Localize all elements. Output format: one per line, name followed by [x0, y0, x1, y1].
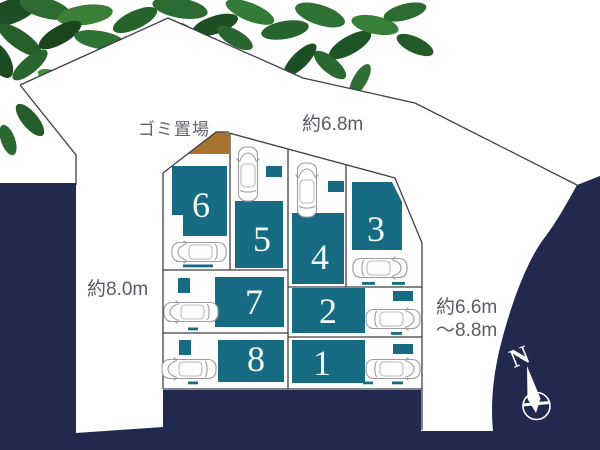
porch-marker-1	[393, 344, 413, 354]
car-icon	[164, 301, 218, 324]
lot-number-3: 3	[367, 209, 385, 249]
stall-dash-6	[183, 265, 213, 268]
stall-dash-1a	[363, 382, 373, 385]
garbage-area-label: ゴミ置場	[138, 119, 210, 139]
stall-dash-3a	[362, 282, 375, 285]
dimension-top-label: 約6.8m	[302, 113, 363, 135]
lot-number-7: 7	[245, 282, 263, 322]
left-navy-band	[0, 183, 76, 450]
car-icon	[366, 358, 420, 381]
lot-number-5: 5	[253, 219, 271, 259]
car-icon	[353, 257, 407, 280]
dimension-right-label-line2: 〜8.8m	[436, 320, 497, 341]
stall-dash-7	[188, 328, 198, 331]
porch-marker-2	[393, 291, 413, 301]
car-icon	[366, 308, 420, 331]
car-icon	[237, 147, 260, 201]
stall-dash-8	[188, 382, 198, 385]
lot-number-6: 6	[192, 185, 210, 225]
porch-marker-4	[328, 181, 344, 192]
car-icon	[172, 241, 226, 264]
stall-dash-2	[391, 332, 402, 335]
stall-dash-1b	[392, 382, 403, 385]
porch-marker-5	[266, 166, 282, 177]
lot-number-4: 4	[311, 237, 329, 277]
site-plan: 1 2 3 4 5 6 7 8 ゴミ置場 約6.8m 約8.0m 約6.6m 〜…	[0, 0, 600, 450]
lot-number-2: 2	[319, 291, 337, 331]
car-icon	[296, 163, 319, 217]
porch-marker-8	[179, 340, 191, 355]
lot-number-1: 1	[313, 343, 331, 383]
lot-number-8: 8	[247, 339, 265, 379]
dimension-left-label: 約8.0m	[87, 278, 148, 300]
porch-marker-7	[178, 278, 190, 293]
stall-dash-3b	[392, 282, 405, 285]
car-icon	[162, 358, 216, 381]
dimension-right-label-line1: 約6.6m	[436, 296, 497, 318]
site-plan-svg: 1 2 3 4 5 6 7 8 ゴミ置場 約6.8m 約8.0m 約6.6m 〜…	[0, 0, 600, 450]
